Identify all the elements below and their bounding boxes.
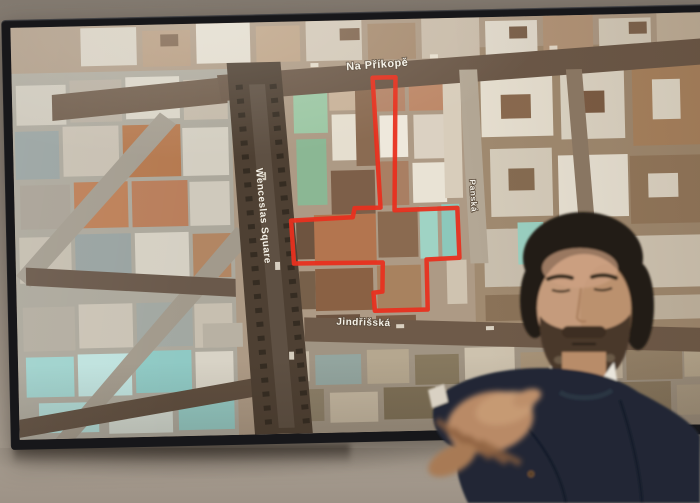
tv-screen: Na Příkopě Wenceslas Square Panská Jindř…: [10, 12, 700, 440]
wall-mounted-tv: Na Příkopě Wenceslas Square Panská Jindř…: [1, 4, 700, 450]
photo-scene: Na Příkopě Wenceslas Square Panská Jindř…: [0, 0, 700, 503]
street-label-jindrisska: Jindřišská: [336, 317, 391, 330]
satellite-city-map: Na Příkopě Wenceslas Square Panská Jindř…: [10, 12, 700, 440]
tv-soft-shadow: [0, 448, 560, 490]
street-label-panska: Panská: [468, 179, 480, 212]
